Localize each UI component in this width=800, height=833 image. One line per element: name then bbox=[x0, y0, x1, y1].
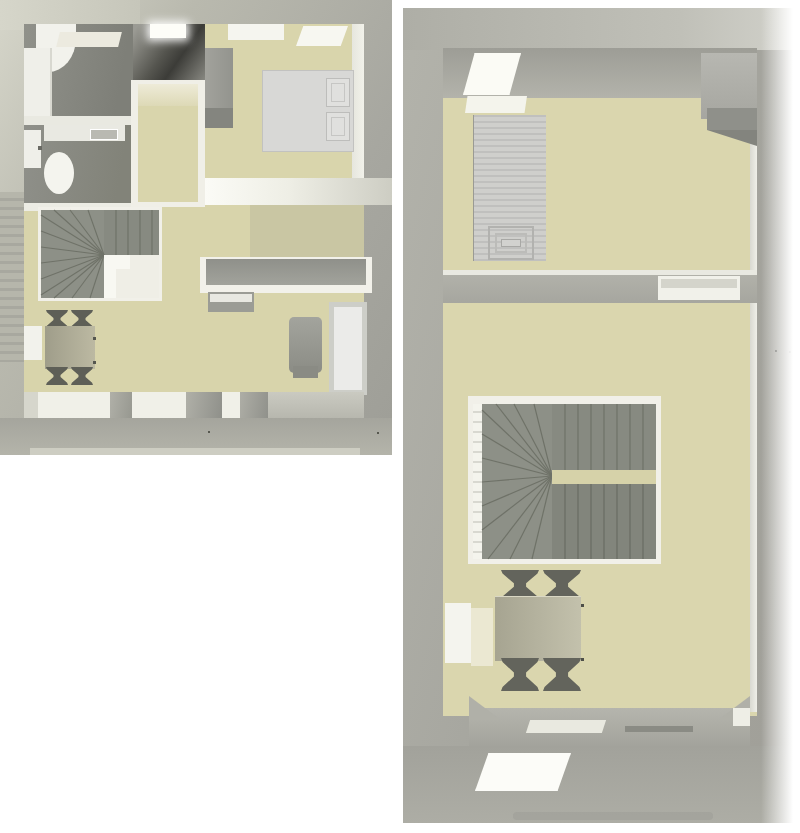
bottom-right-gap bbox=[733, 708, 750, 726]
sofa bbox=[329, 302, 367, 395]
bedroom-window-2 bbox=[296, 26, 348, 46]
bedroom-window-1 bbox=[228, 24, 284, 40]
dining-window bbox=[445, 603, 471, 663]
floor-plan-first bbox=[0, 0, 392, 455]
skylight-lower-panel bbox=[465, 96, 527, 113]
staircase bbox=[468, 396, 661, 564]
living-room-tint bbox=[250, 205, 364, 260]
armchair-base bbox=[293, 366, 318, 378]
kitchen-counter-top bbox=[206, 259, 366, 285]
washbasin-tap-dot bbox=[38, 146, 42, 150]
sideboard bbox=[208, 292, 254, 312]
hallway-floor bbox=[138, 90, 198, 202]
outer-wall-top-band bbox=[403, 8, 800, 50]
dining-table bbox=[495, 596, 581, 661]
pillow-inner-line bbox=[331, 117, 345, 136]
kitchen-counter bbox=[200, 257, 372, 293]
dividing-wall bbox=[205, 178, 392, 205]
table-knob-dot-1 bbox=[93, 337, 96, 340]
speck-dot-2 bbox=[377, 432, 379, 434]
wall-shelf bbox=[56, 32, 122, 47]
sideboard-top bbox=[210, 294, 252, 302]
pillow-inner-line bbox=[331, 83, 345, 102]
bedroom-wardrobe bbox=[205, 48, 233, 110]
bed-pillow-1 bbox=[326, 78, 350, 107]
bottom-wall-pier-1 bbox=[110, 392, 132, 418]
table-knob-dot-1 bbox=[581, 604, 584, 607]
vanity-counter bbox=[24, 48, 52, 120]
bottom-white-ledge bbox=[526, 720, 606, 733]
toilet bbox=[44, 152, 74, 194]
room-divider-top-edge bbox=[443, 270, 757, 275]
staircase-svg bbox=[468, 396, 661, 564]
right-edge-highlight-fade bbox=[761, 8, 800, 823]
right-inner-wall-highlight bbox=[750, 56, 757, 712]
bottom-wall-bevel bbox=[469, 708, 750, 746]
attic-wardrobe-front bbox=[707, 108, 757, 130]
armchair bbox=[289, 317, 322, 373]
staircase bbox=[38, 207, 162, 301]
void-skylight bbox=[150, 24, 186, 38]
wall-niche-inner bbox=[661, 279, 737, 288]
render-canvas bbox=[0, 0, 800, 833]
table-knob-dot-2 bbox=[581, 658, 584, 661]
striped-single-bed bbox=[473, 115, 546, 261]
bed-foot-pattern-inner bbox=[495, 233, 527, 253]
bed-foot-pattern bbox=[488, 226, 534, 260]
wc-sink-inset bbox=[90, 129, 118, 140]
table-knob-dot-2 bbox=[93, 361, 96, 364]
bottom-dark-ledge bbox=[625, 726, 693, 732]
bottom-shadow-strip bbox=[513, 812, 713, 820]
plan-drop-shadow bbox=[30, 448, 360, 455]
bottom-wall-pier-3 bbox=[240, 392, 268, 418]
floor-plan-second bbox=[403, 8, 800, 823]
bottom-wall-bevel-left bbox=[24, 392, 38, 418]
dining-window bbox=[24, 326, 42, 360]
staircase-svg bbox=[38, 207, 162, 301]
speck-dot-1 bbox=[208, 431, 210, 433]
wall-niche bbox=[658, 276, 740, 300]
bedroom-wardrobe-front bbox=[205, 108, 233, 128]
bottom-wall-pier-2 bbox=[186, 392, 222, 418]
hallway-light-panel bbox=[138, 84, 198, 106]
outer-wall-left-texture bbox=[0, 192, 26, 362]
dining-table bbox=[45, 326, 95, 369]
bathroom-wall bbox=[24, 116, 133, 125]
bed-pillow-2 bbox=[326, 112, 350, 141]
bed-foot-pattern-core bbox=[501, 239, 521, 247]
roof-window-bottom bbox=[475, 753, 571, 791]
window-light-patch bbox=[471, 608, 493, 666]
bottom-wall-right-section bbox=[268, 392, 364, 418]
